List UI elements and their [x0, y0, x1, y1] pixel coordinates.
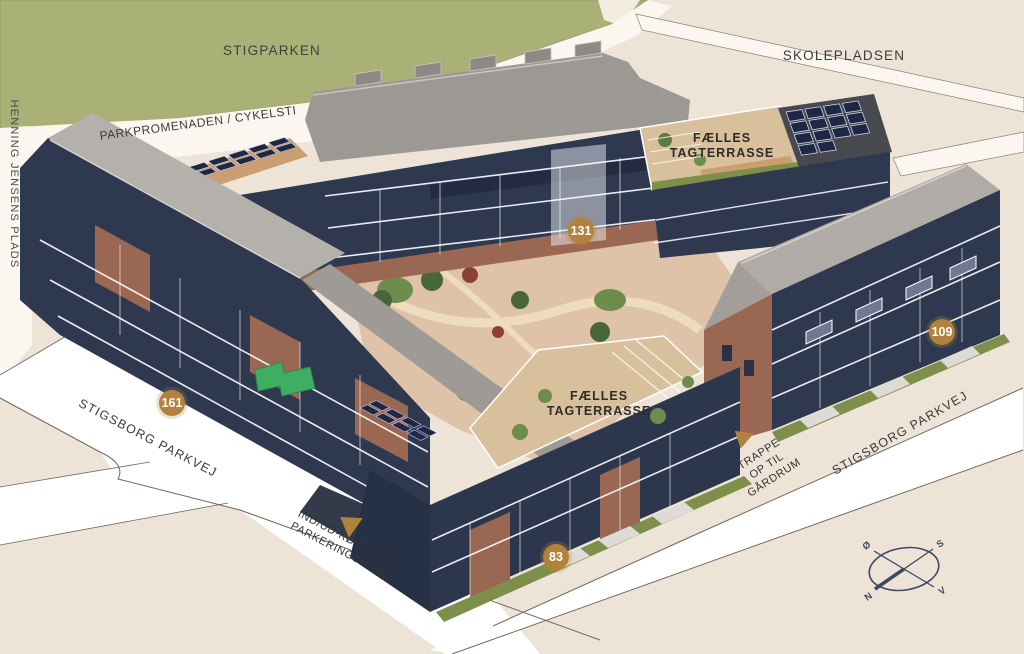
marker-161[interactable]: 161: [159, 390, 185, 416]
compass-rose: Ø S N V: [858, 534, 950, 611]
compass-north-label: N: [863, 591, 875, 604]
roof-terrace-south-line1: FÆLLES: [570, 389, 628, 403]
plads-label: HENNING JENSENS PLADS: [8, 84, 20, 284]
marker-83[interactable]: 83: [543, 544, 569, 570]
compass-east-label: Ø: [861, 539, 873, 552]
roof-terrace-northeast-line2: TAGTERRASSE: [670, 146, 775, 160]
park-label: STIGPARKEN: [172, 43, 372, 58]
roof-terrace-northeast-label: FÆLLES TAGTERRASSE: [647, 131, 797, 161]
site-plan: STIGPARKEN SKOLEPLADSEN HENNING JENSENS …: [0, 0, 1024, 654]
compass-west-label: V: [937, 585, 949, 598]
compass-south-label: S: [935, 538, 947, 551]
marker-109[interactable]: 109: [929, 319, 955, 345]
marker-131[interactable]: 131: [568, 218, 594, 244]
roof-terrace-northeast-line1: FÆLLES: [693, 131, 751, 145]
roof-terrace-south-label: FÆLLES TAGTERRASSE: [524, 389, 674, 419]
school-plaza-label: SKOLEPLADSEN: [744, 48, 944, 63]
roof-terrace-south-line2: TAGTERRASSE: [547, 404, 652, 418]
